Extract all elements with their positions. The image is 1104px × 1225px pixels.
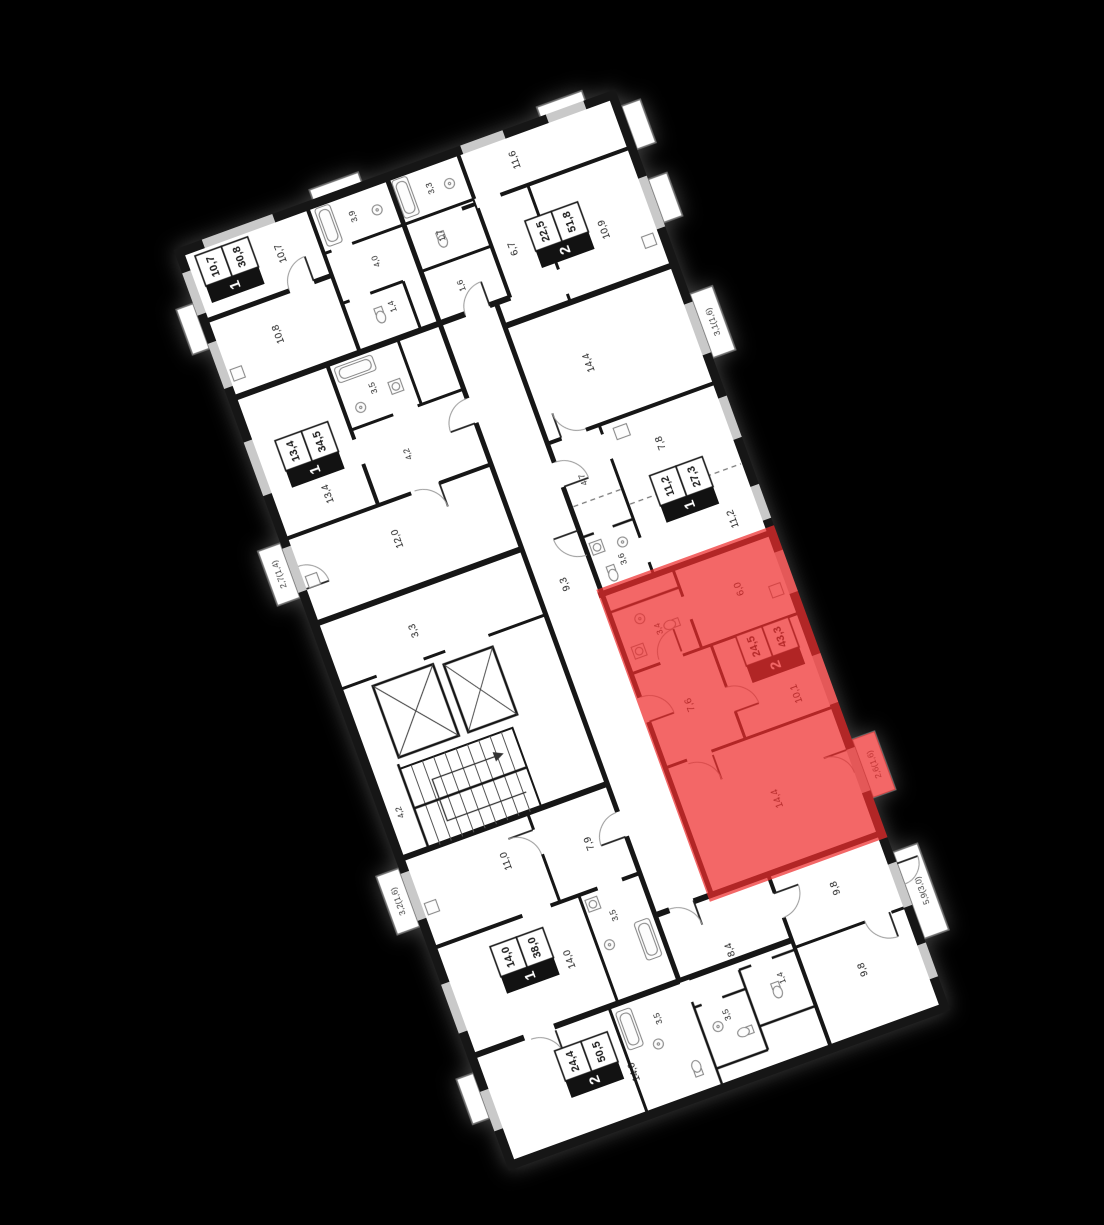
screenshot-background: 10,7 30,8 1 10,7 10,8 3,9 4,0 1,4 22,5 5… xyxy=(0,0,1104,1225)
floor-plan: 10,7 30,8 1 10,7 10,8 3,9 4,0 1,4 22,5 5… xyxy=(143,68,981,1191)
floor-plan-container: 10,7 30,8 1 10,7 10,8 3,9 4,0 1,4 22,5 5… xyxy=(143,68,981,1191)
